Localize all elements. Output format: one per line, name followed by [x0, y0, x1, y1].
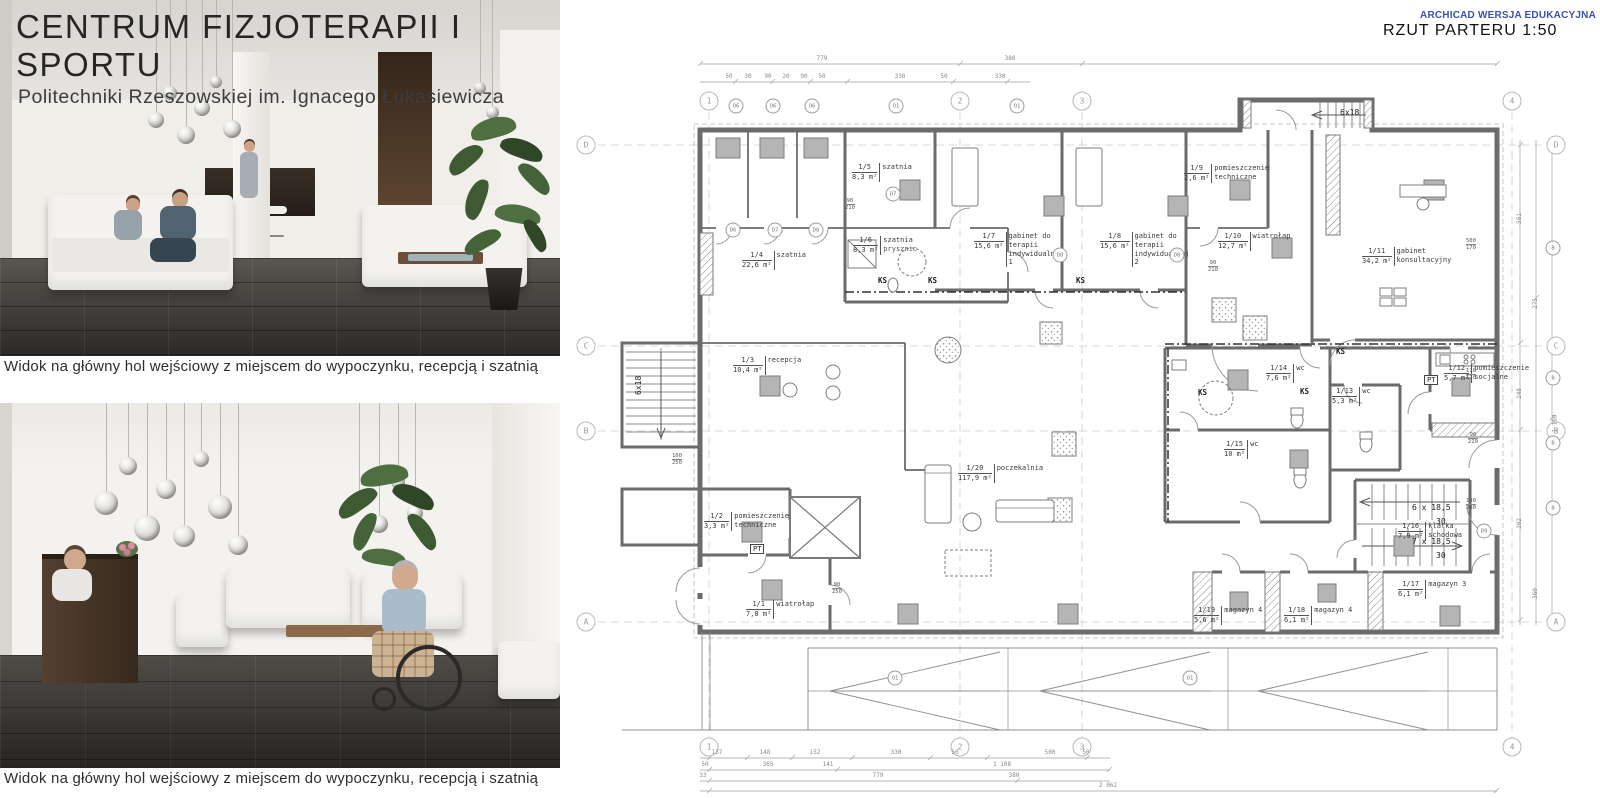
room-label-1-18: 1/186,1 m²magazyn 4 [1284, 606, 1352, 625]
dim-bottom: 137 [712, 749, 723, 756]
window-tag-o1: O1 [889, 99, 904, 114]
dim-top: 380 [1005, 55, 1016, 62]
dim-right: 202 [1516, 518, 1523, 529]
room-label-1-5: 1/58,3 m²szatnia [852, 163, 912, 182]
dim-bottom: 380 [1009, 772, 1020, 779]
dim-top: 90 [764, 73, 771, 80]
stair-riser-count: 30 [1436, 517, 1446, 526]
door-size-100-250: 100250 [672, 453, 682, 466]
door-tag-d6: D6 [726, 223, 741, 238]
room-label-1-13: 1/135,3 m²wc [1332, 387, 1371, 406]
grid-bubble-D-right: D [1547, 136, 1566, 155]
grid-lines [598, 112, 1544, 740]
board-subtitle: Politechniki Rzeszowskiej im. Ignacego Ł… [18, 86, 560, 109]
door-tag-d7: D7 [768, 223, 783, 238]
door-size-90-210: 90210 [1468, 432, 1478, 445]
dimension-lines [698, 61, 1555, 793]
dim-bottom: 1 108 [993, 761, 1011, 768]
room-label-1-3: 1/310,4 m²recepcja [733, 356, 801, 375]
room-label-1-10: 1/1012,7 m²wiatrołap [1218, 232, 1290, 251]
ks-mark: KS [928, 276, 937, 285]
grid-bubble-A-right: A [1547, 613, 1566, 632]
room-label-1-12: 1/125,7 m²pomieszczenie socjalne [1444, 364, 1532, 383]
ks-mark: KS [878, 276, 887, 285]
dim-right: 581 [1516, 213, 1523, 224]
grid-bubble-4b: 4 [1503, 738, 1522, 757]
room-label-1-15: 1/1510 m²wc [1224, 440, 1259, 459]
door-size-90-210: 90210 [1208, 260, 1218, 273]
pt-mark: PT [750, 544, 764, 554]
dim-top: 90 [800, 73, 807, 80]
room-label-1-7: 1/715,6 m²gabinet do terapii indywidualn… [974, 232, 1067, 267]
window-size-170-170: 170170 [1466, 368, 1476, 381]
room-label-1-19: 1/195,6 m²magazyn 4 [1194, 606, 1262, 625]
entrance-canopy [622, 632, 1497, 730]
dim-top: 50 [725, 73, 732, 80]
dim-bottom: 50 [701, 761, 708, 768]
room-label-1-4: 1/422,6 m²szatnia [742, 251, 806, 270]
dim-right: 248 [1516, 388, 1523, 399]
grid-bubble-C-left: C [577, 337, 596, 356]
window-tag-b: B [1546, 241, 1561, 256]
window-tag-o1: O1 [888, 671, 903, 686]
door-tag-d8: D8 [1053, 248, 1068, 263]
dim-top: 30 [744, 73, 751, 80]
stair-label-left: 6x18 [634, 376, 643, 395]
window-tag-b: B [1546, 436, 1561, 451]
door-tag-d9: D9 [1477, 524, 1492, 539]
door-tag-d8: D8 [1170, 248, 1185, 263]
door-size-140-200: 140200 [1466, 498, 1476, 511]
room-label-1-2: 1/23,3 m²pomieszczenie techniczne [704, 512, 792, 531]
door-tag-d7: D7 [886, 187, 901, 202]
dim-top: 779 [817, 55, 828, 62]
grid-bubble-A-left: A [577, 613, 596, 632]
dim-top: 330 [895, 73, 906, 80]
archicad-watermark: ARCHICAD WERSJA EDUKACYJNA [1420, 10, 1596, 21]
ks-mark: KS [1336, 347, 1345, 356]
dim-bottom: 365 [763, 761, 774, 768]
dim-top: 330 [995, 73, 1006, 80]
room-label-1-17: 1/176,1 m²magazyn 3 [1398, 580, 1466, 599]
stair-riser-count: 30 [1436, 551, 1446, 560]
door-size-90-250: 90250 [832, 582, 842, 595]
stair-label-upper-run: 6 x 18,5 [1412, 503, 1451, 512]
pt-mark: PT [1424, 375, 1438, 385]
window-tag-o6: O6 [805, 99, 820, 114]
grid-bubble-4: 4 [1503, 92, 1522, 111]
stair-label-top: 6x18 [1340, 108, 1359, 117]
window-size-500-170: 500170 [1466, 238, 1476, 251]
room-label-1-14: 1/147,6 m²wc [1266, 364, 1305, 383]
grid-bubble-D-left: D [577, 136, 596, 155]
room-label-1-9: 1/92,6 m²pomieszczenie techniczne [1184, 164, 1272, 183]
dim-bottom: 141 [823, 761, 834, 768]
door-tag-d8: D8 [809, 223, 824, 238]
room-label-1-11: 1/1134,2 m²gabinet konsultacyjny [1362, 247, 1455, 266]
dim-top: 50 [940, 73, 947, 80]
door-size-90-210: 90210 [845, 198, 855, 211]
stair-label-lower-run: 7 x 18,5 [1412, 537, 1451, 546]
dim-bottom: 33 [699, 772, 706, 779]
board-title: CENTRUM FIZJOTERAPII I SPORTU [16, 8, 560, 84]
window-tag-b: B [1546, 501, 1561, 516]
dim-bottom: 330 [891, 749, 902, 756]
dim-top: 20 [782, 73, 789, 80]
room-label-1-6: 1/68,3 m²szatniaprysznic [853, 236, 917, 255]
plan-title: RZUT PARTERU 1:50 [1383, 22, 1557, 40]
window-tag-o6: O6 [766, 99, 781, 114]
dim-right: 1 160 [1552, 414, 1559, 432]
dim-top: 50 [818, 73, 825, 80]
dim-bottom: 148 [760, 749, 771, 756]
dim-right: 275 [1532, 298, 1539, 309]
ks-mark: KS [1300, 387, 1309, 396]
room-label-1-1: 1/17,8 m²wiatrołap [746, 600, 814, 619]
window-tag-o6: O6 [729, 99, 744, 114]
ks-mark: KS [1076, 276, 1085, 285]
window-tag-o1: O1 [1183, 671, 1198, 686]
dim-bottom: 50 [951, 749, 958, 756]
dim-bottom: 500 [1045, 749, 1056, 756]
window-tag-b: B [1546, 371, 1561, 386]
dim-bottom: 50 [1082, 749, 1089, 756]
window-tag-o1: O1 [1010, 99, 1025, 114]
grid-bubble-C-right: C [1547, 337, 1566, 356]
dim-right: 360 [1532, 588, 1539, 599]
room-label-1-20: 1/20117,9 m²poczekalnia [958, 464, 1043, 483]
ks-mark: KS [1198, 388, 1207, 397]
grid-bubble-B-left: B [577, 422, 596, 441]
grid-bubble-2: 2 [951, 92, 970, 111]
dim-bottom-total: 2 062 [1099, 782, 1117, 789]
grid-bubble-3: 3 [1073, 92, 1092, 111]
presentation-board: CENTRUM FIZJOTERAPII I SPORTU Politechni… [0, 0, 1600, 798]
dim-bottom: 152 [810, 749, 821, 756]
dim-bottom: 779 [873, 772, 884, 779]
grid-bubble-1: 1 [700, 92, 719, 111]
